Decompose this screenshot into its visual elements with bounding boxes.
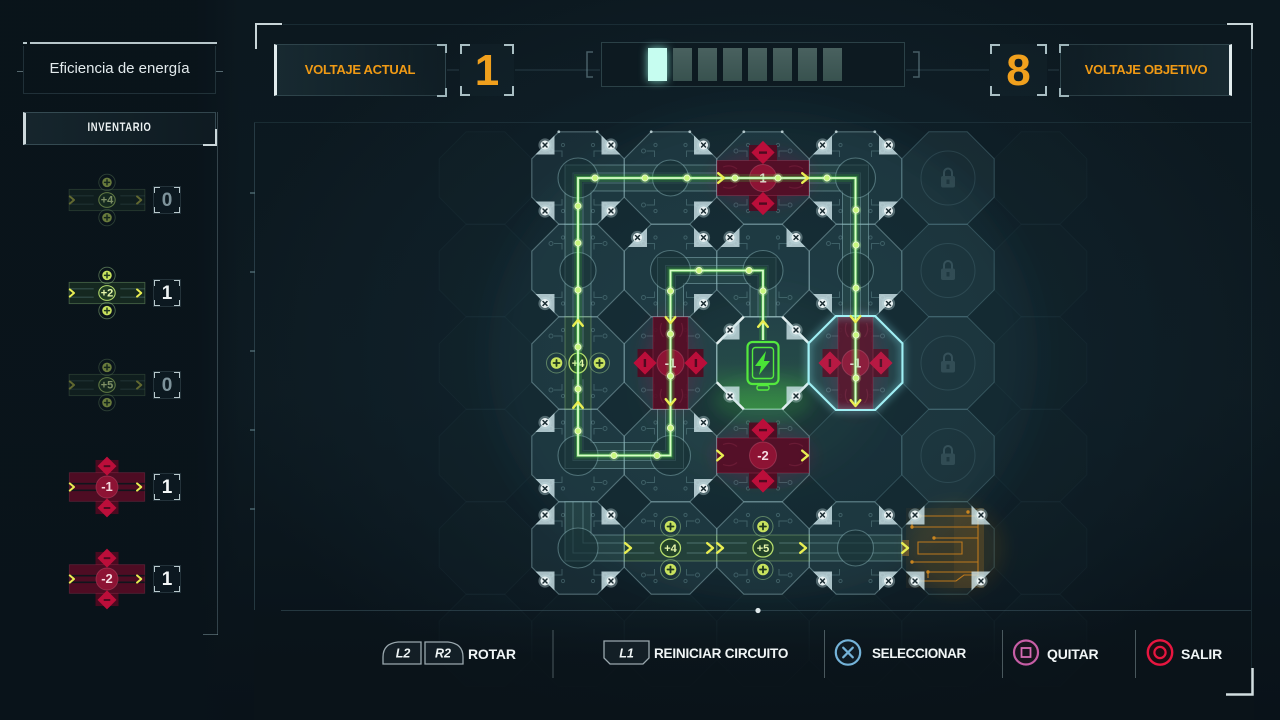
svg-text:+5: +5: [757, 543, 770, 555]
svg-text:-2: -2: [757, 448, 769, 463]
svg-text:L2: L2: [396, 647, 411, 661]
svg-text:+2: +2: [101, 288, 114, 300]
svg-text:+4: +4: [101, 195, 114, 207]
svg-text:-1: -1: [101, 479, 113, 494]
svg-text:-2: -2: [101, 571, 113, 586]
svg-text:+4: +4: [664, 543, 677, 555]
svg-text:+5: +5: [101, 380, 114, 392]
svg-text:R2: R2: [435, 647, 451, 661]
svg-text:L1: L1: [619, 647, 634, 661]
